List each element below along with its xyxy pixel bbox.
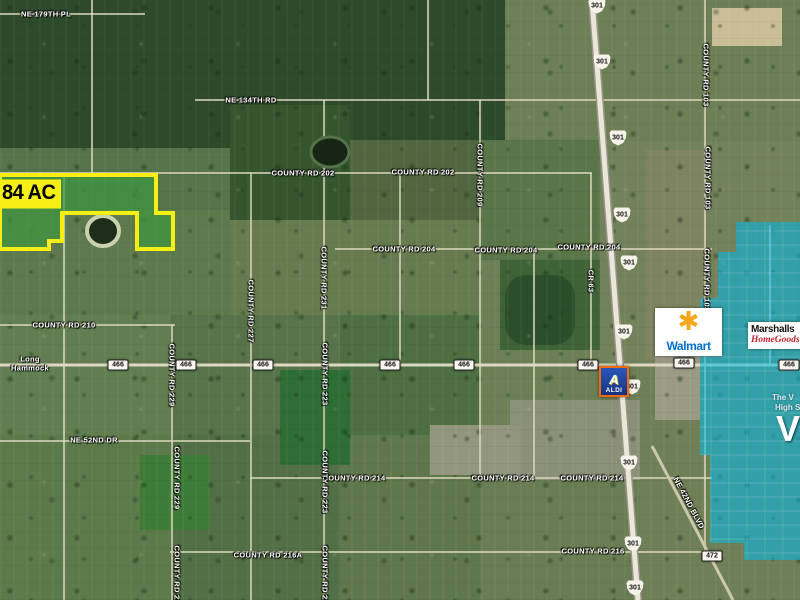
walmart-logo-text: Walmart — [666, 339, 710, 353]
road-grid — [0, 0, 800, 600]
homegoods-logo-text: HomeGoods — [751, 335, 800, 345]
walmart-logo: ✱ Walmart — [655, 308, 722, 356]
walmart-spark-icon: ✱ — [678, 306, 700, 336]
aldi-logo-text: ALDI — [606, 386, 623, 395]
villages-label-line1: The V — [772, 393, 794, 402]
us301-road — [592, 0, 638, 600]
pond — [311, 137, 349, 167]
pond — [87, 216, 119, 246]
aldi-logo: A ALDI — [599, 366, 629, 397]
map-vector-layer — [0, 0, 800, 600]
marshalls-logo-text: Marshalls — [751, 325, 794, 335]
aerial-map[interactable]: NE 179TH PLNE 134TH RDCOUNTY RD 202COUNT… — [0, 0, 800, 600]
marshalls-homegoods-logo: Marshalls HomeGoods — [748, 322, 800, 349]
villages-overlay — [700, 222, 800, 560]
villages-big-letter: V — [776, 408, 800, 450]
parcel-acreage-label: 84 AC — [0, 179, 61, 208]
aldi-emblem-icon: A — [609, 373, 618, 386]
